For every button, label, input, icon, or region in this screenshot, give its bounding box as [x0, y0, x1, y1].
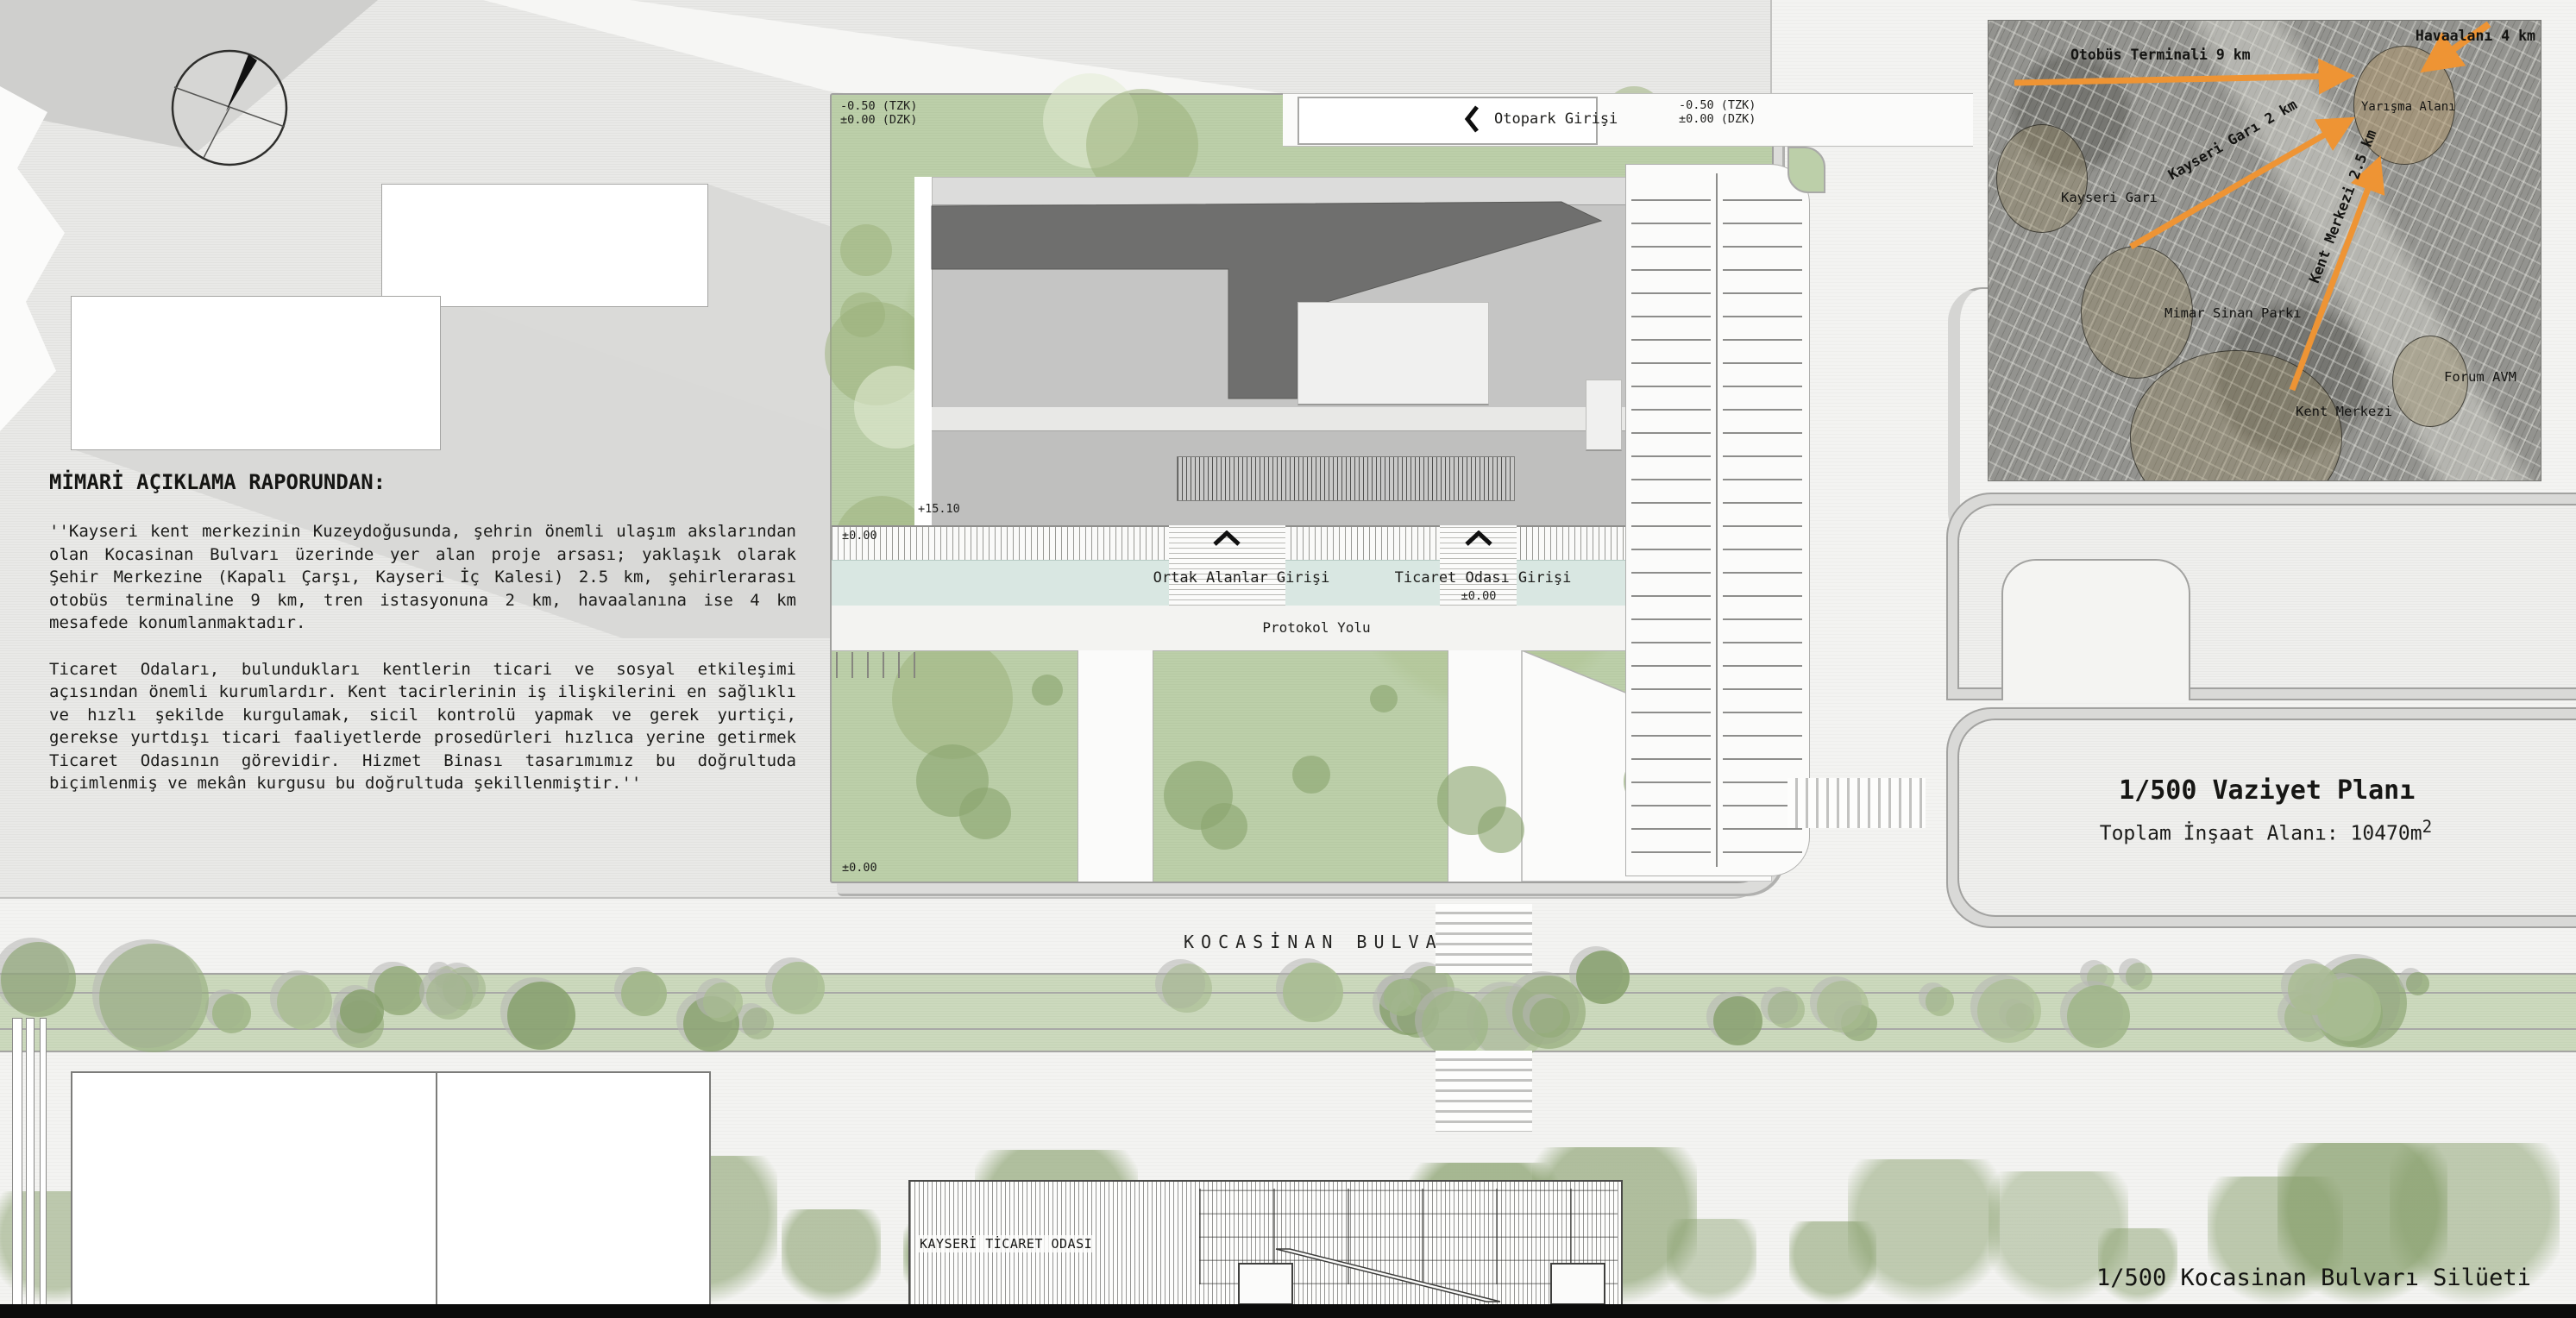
- existing-building-sliver: [12, 1018, 22, 1306]
- protocol-road-label: Protokol Yolu: [1262, 619, 1370, 636]
- chamber-building-elevation: KAYSERİ TİCARET ODASI: [908, 1180, 1623, 1309]
- tree: [99, 944, 209, 1053]
- location-map: Otobüs Terminali 9 km Havaalanı 4 km Yar…: [1988, 20, 2541, 481]
- entrance-door: [1550, 1263, 1605, 1305]
- architectural-report: MİMARİ AÇIKLAMA RAPORUNDAN: ''Kayseri ke…: [49, 470, 796, 819]
- tree: [1283, 963, 1342, 1022]
- tree: [1292, 756, 1330, 794]
- plan-caption-title: 1/500 Vaziyet Planı: [2119, 775, 2415, 806]
- boulevard-median: [0, 973, 2576, 1052]
- tree: [1977, 979, 2041, 1043]
- parking-stalls-right: [1723, 187, 1802, 853]
- entrance-label-common: Ortak Alanlar Girişi: [1153, 569, 1330, 587]
- report-paragraph-1: ''Kayseri kent merkezinin Kuzeydoğusunda…: [49, 520, 796, 635]
- tree: [772, 962, 825, 1014]
- parking-lot: [1625, 164, 1810, 876]
- existing-building-sliver: [26, 1018, 35, 1306]
- map-distance-arrows: [1989, 21, 2541, 480]
- existing-building-facade: [436, 1071, 711, 1308]
- chevron-left-icon: [1464, 105, 1480, 133]
- square-meter-sup: 2: [2422, 817, 2433, 837]
- tree: [959, 788, 1011, 839]
- junction-green-pocket: [1787, 147, 1825, 193]
- tree: [1370, 685, 1398, 712]
- roof-skylight: [1297, 302, 1489, 405]
- tree: [507, 982, 575, 1050]
- entrance-arrow-up-icon: [1212, 530, 1241, 546]
- entrance-label-chamber: Ticaret Odası Girişi: [1395, 569, 1572, 587]
- map-label-station: Kayseri Garı: [2061, 190, 2158, 205]
- elevation-tree: [1848, 1159, 2000, 1311]
- building-name-sign: KAYSERİ TİCARET ODASI: [917, 1235, 1095, 1252]
- roof-level-label: +15.10: [918, 502, 960, 516]
- boulevard-label: KOCASİNAN BULVARI: [1184, 932, 1478, 952]
- north-arrow: [169, 47, 290, 168]
- walkway-level-label: ±0.00: [842, 529, 877, 543]
- existing-building-sliver: [40, 1018, 47, 1306]
- tree: [1, 942, 75, 1016]
- elevation-tree: [1667, 1219, 1756, 1309]
- crosswalk: [1787, 778, 1926, 828]
- map-label-mall: Forum AVM: [2444, 369, 2516, 385]
- elevation-tree: [782, 1209, 881, 1309]
- report-paragraph-2: Ticaret Odaları, bulundukları kentlerin …: [49, 658, 796, 795]
- map-label-center: Kent Merkezi: [2296, 404, 2392, 419]
- presentation-sheet: MİMARİ AÇIKLAMA RAPORUNDAN: ''Kayseri ke…: [0, 0, 2576, 1318]
- tree: [2288, 963, 2340, 1015]
- crosswalk: [1436, 904, 1532, 973]
- median-tree-row: [0, 963, 2576, 1056]
- entrance-arrow-up-icon: [1464, 530, 1493, 546]
- tree: [1032, 675, 1063, 706]
- otopark-entry-label: Otopark Girişi: [1494, 110, 1618, 128]
- tree: [212, 994, 251, 1032]
- tree: [1713, 996, 1762, 1045]
- entrance-door: [1238, 1263, 1293, 1305]
- caption-parcel: 1/500 Vaziyet Planı Toplam İnşaat Alanı:…: [1946, 707, 2576, 928]
- green-level-left: ±0.00: [842, 861, 877, 875]
- tree: [1926, 987, 1954, 1015]
- entrance-level-chamber: ±0.00: [1461, 589, 1497, 603]
- tree: [277, 975, 332, 1030]
- existing-building-facade: [71, 1071, 439, 1308]
- plan-caption-area: Toplam İnşaat Alanı: 10470m2: [2100, 817, 2432, 845]
- parcel-notch-road: [2001, 559, 2190, 700]
- roof-louvre-strip: [1177, 456, 1515, 501]
- tree: [1384, 979, 1421, 1016]
- caption-parcel-inner: 1/500 Vaziyet Planı Toplam İnşaat Alanı:…: [1957, 719, 2576, 917]
- report-title: MİMARİ AÇIKLAMA RAPORUNDAN:: [49, 470, 796, 494]
- tree: [1768, 991, 1804, 1027]
- map-label-site: Yarışma Alanı: [2361, 100, 2456, 114]
- tree: [1576, 951, 1630, 1004]
- tree: [1478, 806, 1524, 853]
- tree: [1530, 998, 1569, 1038]
- tree: [742, 1007, 774, 1039]
- tree: [1422, 991, 1488, 1058]
- tree: [2126, 963, 2152, 989]
- north-arrow-icon: [169, 47, 290, 168]
- tree: [426, 973, 473, 1020]
- tree: [1201, 803, 1247, 850]
- map-label-park: Mimar Sinan Parkı: [2164, 305, 2302, 321]
- level-label-topright: -0.50 (TZK) ±0.00 (DZK): [1679, 98, 1756, 126]
- map-label-airport: Havaalanı 4 km: [2416, 28, 2535, 44]
- context-building: [381, 184, 708, 307]
- tree: [621, 971, 666, 1016]
- parking-stalls-left: [1631, 187, 1711, 853]
- tree: [2406, 972, 2429, 995]
- tree: [2067, 985, 2130, 1048]
- tree: [1817, 981, 1869, 1032]
- sheet-footer-bar: [0, 1304, 2576, 1318]
- tree: [1162, 963, 1212, 1014]
- parking-aisle-line: [1716, 173, 1718, 867]
- map-label-bus-terminal: Otobüs Terminali 9 km: [2070, 47, 2251, 63]
- roof-skylight-small: [1586, 380, 1622, 451]
- context-building: [71, 296, 441, 450]
- silhouette-caption: 1/500 Kocasinan Bulvarı Silüeti: [2096, 1265, 2531, 1291]
